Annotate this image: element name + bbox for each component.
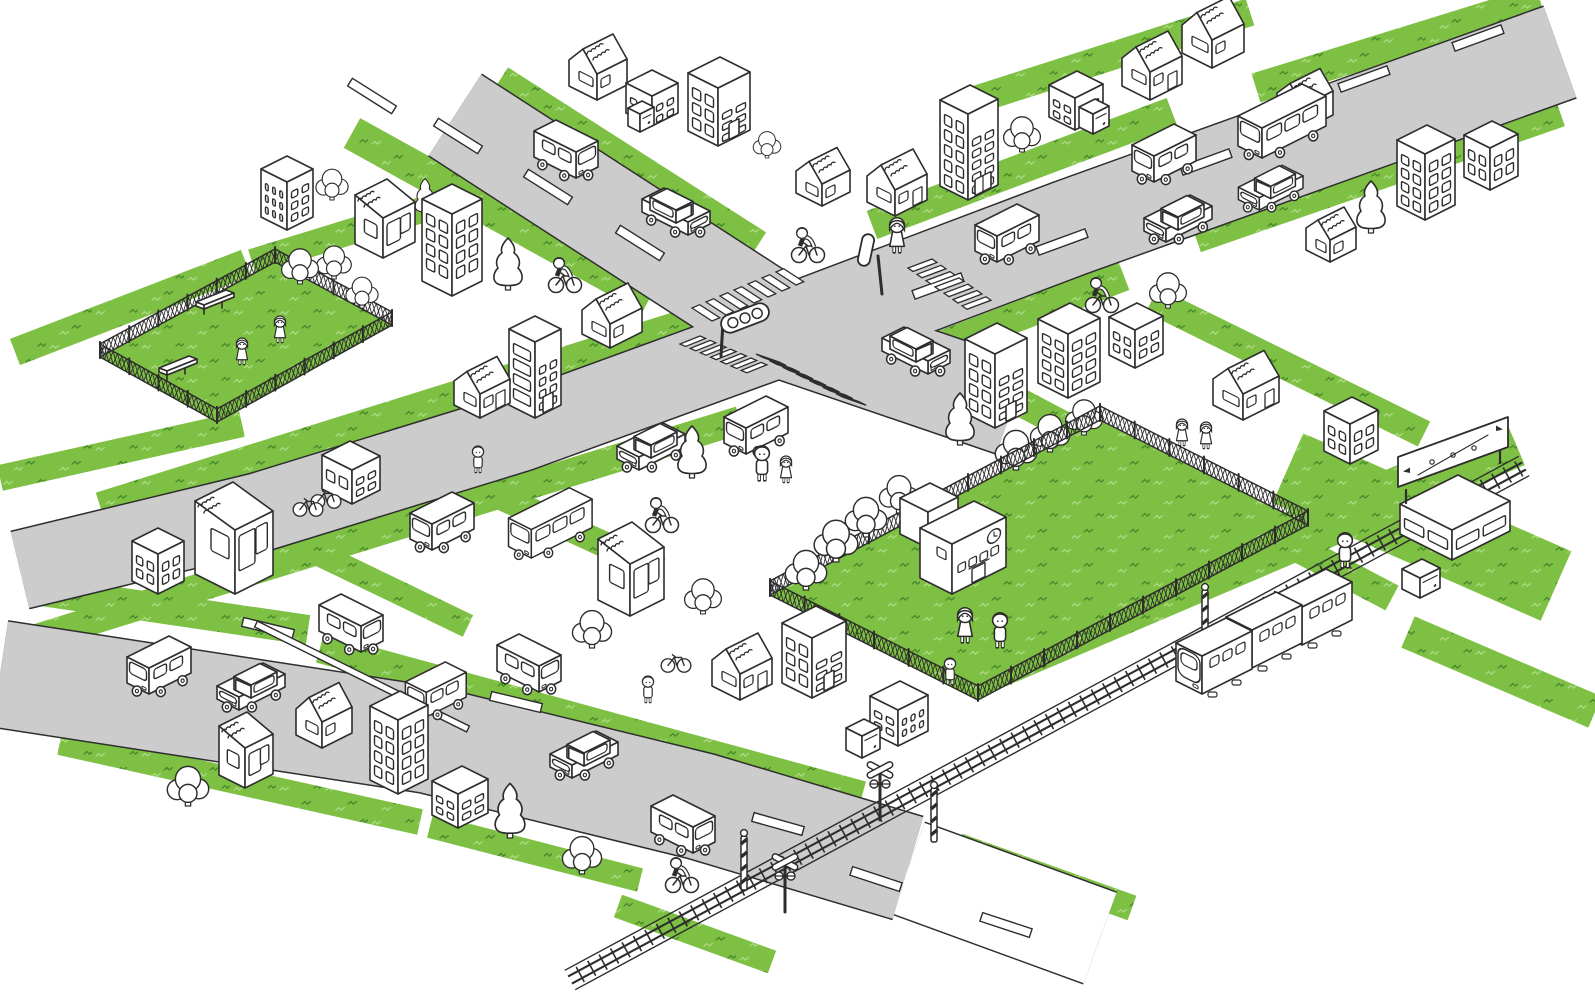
tree-icon-part xyxy=(857,515,875,533)
bus-vehicle-part xyxy=(514,550,523,560)
person-part xyxy=(951,664,952,665)
person xyxy=(274,316,285,342)
house xyxy=(712,633,772,700)
car-vehicle-part xyxy=(271,690,280,700)
person-part xyxy=(787,462,788,463)
tree-icon xyxy=(572,611,611,648)
small-park-fence-part xyxy=(140,323,144,334)
van-vehicle-part xyxy=(439,543,448,553)
car-vehicle-part xyxy=(1198,222,1207,232)
small-park-fence-part xyxy=(135,325,139,336)
person-part xyxy=(274,327,285,338)
train-car-part xyxy=(1332,631,1341,636)
barrier-pole xyxy=(741,830,748,890)
person-part xyxy=(759,453,761,455)
tree-icon xyxy=(753,132,781,158)
person-part xyxy=(236,349,247,360)
building-part-part xyxy=(266,207,269,215)
tree-icon xyxy=(845,497,886,537)
van-vehicle-part xyxy=(132,686,141,696)
car-vehicle-part xyxy=(696,227,705,237)
car-vehicle-part xyxy=(671,227,680,237)
person xyxy=(236,338,247,364)
person xyxy=(780,456,791,482)
van-vehicle-part xyxy=(454,700,463,710)
cyclist xyxy=(792,228,825,263)
van-vehicle-part xyxy=(156,687,165,697)
person-part xyxy=(1204,428,1205,429)
car-vehicle-part xyxy=(555,770,564,780)
person-part xyxy=(1183,425,1184,426)
building-part-part xyxy=(911,714,915,722)
person-part xyxy=(278,322,279,323)
tree-icon-part xyxy=(797,568,815,586)
tree-icon-part xyxy=(325,183,339,197)
person-part xyxy=(243,344,244,345)
building xyxy=(940,85,998,200)
lane-dash xyxy=(348,78,397,113)
building-part-part xyxy=(920,709,924,717)
building xyxy=(782,606,846,698)
car-vehicle-part xyxy=(222,702,231,712)
van-vehicle-part xyxy=(538,160,547,170)
shop-house-part-part xyxy=(260,744,268,765)
building-part-part xyxy=(273,210,276,218)
bus-vehicle-part xyxy=(1244,150,1253,160)
tree-icon-part xyxy=(574,854,591,871)
isometric-town-illustration xyxy=(0,0,1595,1001)
van-vehicle-part xyxy=(415,542,424,552)
tree-icon-part xyxy=(827,539,846,558)
car-vehicle-part xyxy=(604,758,613,768)
van-vehicle-part xyxy=(1183,164,1192,174)
van-vehicle-part xyxy=(1137,174,1146,184)
van-vehicle-part xyxy=(775,436,784,446)
cyclist xyxy=(666,858,699,893)
van-vehicle-part xyxy=(1026,244,1035,254)
van-vehicle-part xyxy=(461,532,470,542)
car-vehicle-part xyxy=(580,770,589,780)
building-part-part xyxy=(903,718,907,726)
car-vehicle-part xyxy=(1149,234,1158,244)
car-vehicle-part xyxy=(936,366,945,376)
tree-icon-part xyxy=(695,595,711,611)
tree-icon-part xyxy=(761,144,773,156)
building-part-part xyxy=(280,214,283,222)
vending-box xyxy=(628,101,654,132)
building-part-part xyxy=(266,183,269,191)
small-park-fence-part xyxy=(144,320,148,331)
building xyxy=(1464,121,1518,190)
tree-icon-part xyxy=(355,291,369,305)
van-vehicle-part xyxy=(523,685,532,695)
person xyxy=(1176,419,1187,445)
tree-icon-part xyxy=(179,784,197,802)
van-vehicle-part xyxy=(1004,255,1013,265)
house xyxy=(1182,0,1244,68)
tree-icon-part xyxy=(292,265,308,281)
person-part xyxy=(962,615,964,617)
small-park-fence-part xyxy=(131,327,135,338)
barrier-pole-part xyxy=(1202,584,1209,591)
building xyxy=(688,57,750,146)
building-part-part xyxy=(911,725,915,733)
house xyxy=(796,148,850,207)
person-part xyxy=(1346,540,1348,542)
car-vehicle-part xyxy=(647,215,656,225)
barrier-pole-part xyxy=(931,782,938,789)
person-part xyxy=(946,669,955,680)
small-park-fence-part xyxy=(175,303,179,314)
person-part xyxy=(1207,428,1208,429)
car-vehicle-part xyxy=(247,702,256,712)
person-part xyxy=(756,460,767,475)
vending-box xyxy=(1079,99,1109,134)
building-part-part xyxy=(903,729,907,737)
grass-band xyxy=(1408,632,1595,712)
person xyxy=(755,446,770,480)
building-part-part xyxy=(280,202,283,210)
tree-icon-part xyxy=(327,261,342,276)
house xyxy=(569,34,627,100)
person xyxy=(1200,422,1211,448)
bus-vehicle-part xyxy=(544,548,553,558)
car-vehicle-part xyxy=(1243,202,1252,212)
bus-vehicle-part xyxy=(1309,131,1318,141)
person xyxy=(890,218,905,252)
van-vehicle-part xyxy=(677,846,686,856)
person-part xyxy=(479,452,480,453)
tree-icon xyxy=(316,169,348,200)
building xyxy=(1397,125,1455,220)
tree-icon-part xyxy=(584,628,601,645)
person-part xyxy=(644,687,653,698)
tree-icon-part xyxy=(1160,289,1176,305)
car-vehicle-part xyxy=(1290,191,1299,201)
conifer-tree-icon-part xyxy=(494,238,522,286)
shop-house-part-part xyxy=(239,528,255,571)
car-vehicle-part xyxy=(1267,202,1276,212)
van-vehicle-part xyxy=(178,676,187,686)
small-park-fence-part xyxy=(162,311,166,322)
van-vehicle-part xyxy=(560,171,569,181)
person-part xyxy=(240,344,241,345)
person-part xyxy=(1342,540,1344,542)
small-park-fence-part xyxy=(170,306,174,317)
van-vehicle-part xyxy=(1161,175,1170,185)
house xyxy=(1306,207,1356,262)
car-vehicle-part xyxy=(647,462,656,472)
train-car-part xyxy=(1308,643,1317,648)
small-park-fence-part xyxy=(166,308,170,319)
person-part xyxy=(1176,430,1187,441)
small-park-fence-part xyxy=(148,318,152,329)
person-part xyxy=(1001,620,1003,622)
building-part-part xyxy=(273,187,276,195)
train-car xyxy=(1176,618,1252,697)
building xyxy=(261,156,313,230)
building xyxy=(1324,397,1378,464)
vending-box xyxy=(846,719,880,758)
tree-icon xyxy=(1004,117,1041,152)
train-car-part xyxy=(1208,692,1217,697)
person-part xyxy=(966,615,968,617)
car-vehicle-part xyxy=(911,366,920,376)
person-part xyxy=(784,462,785,463)
tree-icon-part xyxy=(1014,133,1030,149)
cyclist xyxy=(646,498,679,533)
person-part xyxy=(646,682,647,683)
shop-house-part-part xyxy=(649,558,659,585)
van-vehicle-part xyxy=(655,835,664,845)
conifer-tree-icon xyxy=(494,238,522,290)
house xyxy=(1213,351,1279,421)
building xyxy=(132,528,184,594)
person-part xyxy=(474,457,483,468)
person-part xyxy=(1200,433,1211,444)
van-vehicle-part xyxy=(547,684,556,694)
small-park-fence-part xyxy=(118,334,122,345)
building-part-part xyxy=(266,195,269,203)
person-part xyxy=(763,453,765,455)
town-scene-canvas xyxy=(0,0,1595,1001)
van-vehicle-part xyxy=(501,674,510,684)
train-car-part xyxy=(1232,680,1241,685)
small-park-fence-part xyxy=(122,332,126,343)
van-vehicle-part xyxy=(584,170,593,180)
small-park-fence-part xyxy=(153,315,157,326)
van-vehicle-part xyxy=(323,634,332,644)
barrier-pole xyxy=(931,782,938,842)
shop-house xyxy=(598,522,664,616)
bus-vehicle-part xyxy=(576,532,585,542)
van-vehicle-part xyxy=(701,845,710,855)
building xyxy=(1038,303,1100,398)
person-part xyxy=(1339,547,1350,562)
barrier-pole-part xyxy=(741,830,748,837)
van-vehicle-part xyxy=(369,644,378,654)
building xyxy=(1109,303,1163,368)
train-car-part xyxy=(1258,666,1267,671)
shop-house xyxy=(355,179,415,258)
car-vehicle-part xyxy=(622,462,631,472)
train-car-part xyxy=(1282,654,1291,659)
building-part-part xyxy=(920,720,924,728)
person-part xyxy=(894,225,896,227)
person-part xyxy=(997,620,999,622)
building xyxy=(370,691,428,794)
person-part xyxy=(958,622,973,637)
tree-icon xyxy=(685,579,722,614)
person-part xyxy=(948,664,949,665)
van-vehicle-part xyxy=(345,645,354,655)
car-vehicle-part xyxy=(1174,234,1183,244)
van-vehicle-part xyxy=(433,710,442,720)
van-vehicle-part xyxy=(729,446,738,456)
building-part-part xyxy=(280,190,283,198)
person-part xyxy=(476,452,477,453)
van-vehicle xyxy=(724,396,788,457)
van-vehicle-part xyxy=(980,254,989,264)
person-part xyxy=(780,467,791,478)
small-park-fence-part xyxy=(109,339,113,350)
car-vehicle-part xyxy=(887,354,896,364)
building xyxy=(509,316,561,418)
bicycle xyxy=(661,655,691,673)
person xyxy=(642,676,653,702)
building xyxy=(965,323,1027,428)
small-park-fence-part xyxy=(113,337,117,348)
bus-vehicle-part xyxy=(1275,148,1284,158)
person-part xyxy=(890,232,905,247)
person-part xyxy=(898,225,900,227)
building-part-part xyxy=(273,199,276,207)
vending-box xyxy=(1402,559,1440,598)
building xyxy=(422,184,482,296)
person-part xyxy=(649,682,650,683)
person xyxy=(958,608,973,642)
person-part xyxy=(281,322,282,323)
person-part xyxy=(994,627,1005,642)
grass-band xyxy=(1152,300,1424,434)
shop-house-part-part xyxy=(256,522,267,555)
person-part xyxy=(1180,425,1181,426)
